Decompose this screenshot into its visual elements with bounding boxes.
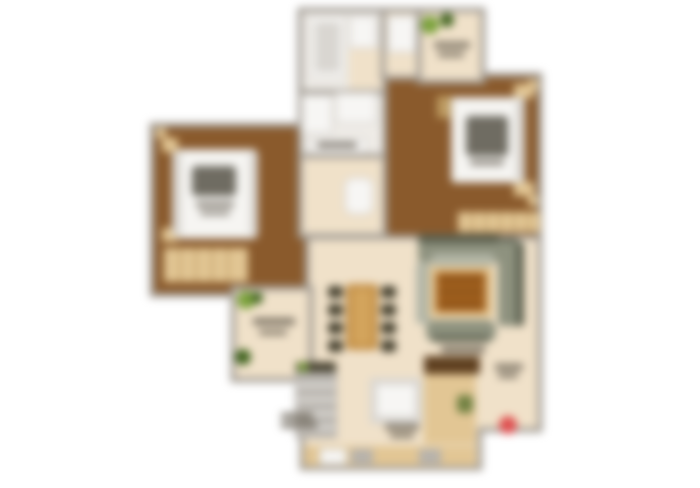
shower-cubicle (310, 16, 345, 78)
label-blur (498, 373, 518, 378)
vanity-counter (310, 138, 366, 154)
appliance (320, 449, 346, 464)
plant-icon (251, 292, 263, 304)
label-blur (441, 346, 485, 353)
sofa-left-arm (416, 262, 431, 324)
label-blur (253, 318, 295, 325)
nightstand (514, 84, 534, 98)
wardrobe (458, 212, 540, 232)
plant-icon (235, 349, 251, 365)
plant-icon (298, 362, 308, 372)
label-blur (385, 424, 419, 430)
label-blur (317, 142, 357, 148)
curtain-post-icon (528, 196, 538, 206)
entry-marker-icon (499, 416, 517, 434)
room-toilet (300, 156, 385, 236)
kitchen-sink (370, 378, 422, 424)
appliance (351, 449, 373, 464)
kitchen-counter-right (424, 356, 480, 444)
plant-icon (421, 16, 439, 34)
washbasin (350, 16, 376, 48)
bath-fixture (302, 95, 332, 133)
room-utility (383, 10, 421, 78)
floor-plan-canvas (0, 0, 700, 488)
double-bed (172, 150, 258, 238)
floor-plan-image (0, 0, 700, 488)
label-blur (390, 433, 414, 438)
bath-fixture (336, 93, 376, 123)
white-fixture (388, 16, 416, 52)
label-blur (438, 52, 464, 57)
rug-coffee-table (429, 266, 493, 318)
label-blur (281, 422, 317, 428)
label-blur (259, 330, 287, 335)
room-balcony-upper-right (419, 10, 483, 82)
nightstand (162, 138, 178, 152)
appliance (419, 449, 441, 464)
room-bedroom-left (152, 125, 307, 295)
nightstand (514, 182, 534, 196)
wardrobe (164, 248, 248, 282)
double-bed (452, 98, 525, 182)
label-blur (495, 364, 523, 370)
label-blur (281, 413, 313, 419)
curtain-post-icon (156, 128, 166, 138)
room-bathroom (300, 10, 385, 156)
dresser (437, 96, 453, 118)
plant-icon (440, 13, 454, 27)
room-bedroom-right (383, 75, 540, 237)
kitchen-counter-bottom (304, 446, 476, 466)
label-blur (434, 42, 470, 48)
wc (345, 178, 373, 214)
